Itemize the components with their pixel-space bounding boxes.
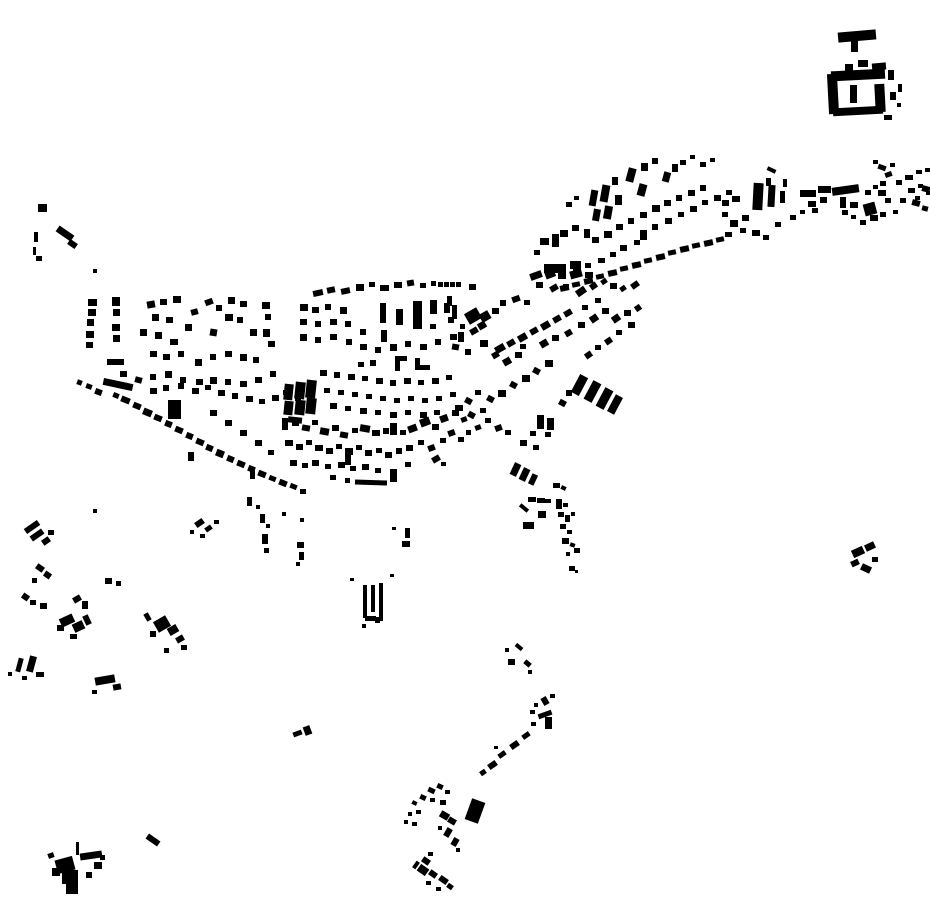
building-footprint bbox=[679, 245, 689, 253]
building-footprint bbox=[665, 218, 672, 224]
building-footprint bbox=[15, 658, 23, 673]
building-footprint bbox=[898, 84, 902, 92]
building-footprint bbox=[559, 284, 569, 292]
building-footprint bbox=[460, 416, 467, 423]
building-footprint bbox=[445, 790, 450, 794]
building-footprint bbox=[112, 392, 119, 399]
building-footprint bbox=[35, 563, 45, 573]
building-footprint bbox=[142, 408, 153, 418]
building-footprint bbox=[325, 304, 331, 310]
building-footprint bbox=[818, 186, 831, 193]
building-footprint bbox=[232, 393, 238, 399]
building-footprint bbox=[112, 297, 120, 306]
building-footprint bbox=[160, 299, 167, 305]
building-footprint bbox=[405, 341, 411, 347]
building-footprint bbox=[560, 230, 568, 237]
building-footprint bbox=[290, 460, 297, 466]
building-footprint bbox=[432, 424, 439, 430]
building-footprint bbox=[918, 184, 923, 188]
building-footprint bbox=[842, 210, 848, 215]
building-footprint bbox=[428, 852, 433, 856]
building-footprint bbox=[567, 530, 572, 534]
building-footprint bbox=[533, 445, 539, 450]
building-footprint bbox=[880, 212, 886, 217]
building-footprint bbox=[296, 562, 300, 566]
building-footprint bbox=[420, 283, 426, 288]
building-footprint bbox=[180, 377, 186, 383]
building-footprint bbox=[497, 750, 506, 759]
building-footprint bbox=[598, 258, 605, 263]
building-footprint bbox=[132, 402, 142, 411]
building-footprint bbox=[529, 326, 539, 335]
building-footprint bbox=[652, 224, 658, 230]
building-footprint bbox=[458, 437, 464, 442]
building-footprint bbox=[486, 395, 495, 404]
building-footprint bbox=[306, 440, 312, 445]
building-footprint bbox=[552, 234, 559, 247]
building-footprint bbox=[396, 309, 403, 325]
building-footprint bbox=[763, 235, 769, 240]
building-footprint bbox=[630, 280, 640, 290]
building-footprint bbox=[464, 397, 473, 406]
building-footprint bbox=[430, 300, 437, 314]
building-footprint bbox=[521, 731, 530, 740]
building-footprint bbox=[413, 301, 422, 329]
building-footprint bbox=[780, 191, 785, 203]
building-footprint bbox=[860, 563, 872, 574]
building-footprint bbox=[531, 722, 536, 726]
building-footprint bbox=[70, 634, 77, 639]
building-footprint bbox=[315, 445, 323, 451]
building-footprint bbox=[338, 462, 345, 468]
building-footprint bbox=[443, 827, 453, 838]
building-footprint bbox=[408, 812, 412, 816]
building-footprint bbox=[595, 298, 601, 303]
building-footprint bbox=[190, 530, 194, 534]
building-footprint bbox=[610, 283, 617, 289]
building-footprint bbox=[592, 208, 601, 221]
building-footprint bbox=[240, 381, 247, 387]
building-footprint bbox=[456, 848, 460, 852]
building-footprint bbox=[624, 310, 631, 316]
building-footprint bbox=[283, 401, 293, 416]
building-footprint bbox=[890, 163, 895, 167]
building-footprint bbox=[383, 428, 389, 434]
building-footprint bbox=[94, 674, 115, 685]
building-footprint bbox=[716, 236, 725, 243]
building-footprint bbox=[355, 479, 387, 485]
building-footprint bbox=[850, 559, 860, 568]
building-footprint bbox=[152, 314, 159, 321]
building-footprint bbox=[714, 195, 721, 201]
building-footprint bbox=[312, 460, 319, 466]
building-footprint bbox=[572, 225, 579, 231]
building-footprint bbox=[310, 385, 316, 390]
building-footprint bbox=[356, 445, 362, 450]
building-footprint bbox=[652, 205, 660, 212]
building-footprint bbox=[350, 578, 354, 581]
building-footprint bbox=[94, 388, 103, 396]
building-footprint bbox=[412, 822, 417, 826]
building-footprint bbox=[418, 380, 424, 385]
building-footprint bbox=[508, 659, 515, 665]
building-footprint bbox=[390, 380, 396, 386]
building-footprint bbox=[602, 308, 609, 314]
building-footprint bbox=[465, 798, 486, 823]
building-footprint bbox=[143, 612, 151, 621]
building-footprint bbox=[878, 190, 886, 196]
building-footprint bbox=[268, 450, 274, 455]
building-footprint bbox=[204, 298, 214, 306]
building-footprint bbox=[604, 231, 612, 238]
building-footprint bbox=[163, 354, 170, 360]
building-footprint bbox=[113, 683, 122, 690]
building-footprint bbox=[872, 557, 878, 562]
building-footprint bbox=[436, 887, 441, 891]
building-footprint bbox=[112, 324, 120, 331]
building-footprint bbox=[422, 398, 428, 403]
building-footprint bbox=[544, 264, 566, 273]
building-footprint bbox=[178, 351, 184, 357]
building-footprint bbox=[863, 202, 878, 217]
building-footprint bbox=[426, 881, 431, 885]
building-footprint bbox=[858, 60, 868, 67]
building-footprint bbox=[82, 614, 92, 626]
building-footprint bbox=[441, 462, 446, 466]
building-footprint bbox=[893, 210, 898, 214]
building-footprint bbox=[52, 868, 60, 876]
building-footprint bbox=[498, 390, 506, 397]
building-footprint bbox=[450, 837, 459, 847]
building-footprint bbox=[168, 400, 181, 419]
building-footprint bbox=[552, 314, 562, 323]
building-footprint bbox=[300, 518, 304, 522]
building-footprint bbox=[553, 483, 560, 488]
building-footprint bbox=[775, 222, 781, 227]
building-footprint bbox=[620, 245, 627, 251]
building-footprint bbox=[194, 518, 205, 528]
building-footprint bbox=[427, 444, 436, 452]
building-footprint bbox=[300, 489, 306, 494]
building-footprint bbox=[315, 337, 321, 343]
building-footprint bbox=[652, 158, 658, 164]
building-footprint bbox=[572, 281, 581, 288]
building-footprint bbox=[450, 392, 456, 397]
building-footprint bbox=[362, 624, 366, 628]
building-footprint bbox=[345, 478, 350, 483]
building-footprint bbox=[534, 250, 540, 255]
building-footprint bbox=[103, 378, 134, 391]
building-footprint bbox=[908, 188, 915, 193]
building-footprint bbox=[915, 196, 920, 200]
building-footprint bbox=[431, 281, 436, 286]
building-footprint bbox=[540, 320, 551, 331]
building-footprint bbox=[380, 303, 386, 323]
building-footprint bbox=[113, 335, 120, 342]
building-footprint bbox=[851, 215, 856, 219]
building-footprint bbox=[884, 171, 892, 178]
building-footprint bbox=[93, 269, 97, 273]
building-footprint bbox=[210, 410, 217, 416]
building-footprint bbox=[439, 414, 449, 423]
building-footprint bbox=[47, 852, 54, 859]
building-footprint bbox=[469, 326, 479, 335]
building-footprint bbox=[607, 269, 617, 277]
building-footprint bbox=[585, 263, 591, 268]
building-footprint bbox=[625, 167, 636, 183]
building-footprint bbox=[86, 331, 94, 338]
building-footprint bbox=[315, 321, 321, 327]
building-footprint bbox=[33, 247, 36, 255]
building-footprint bbox=[94, 862, 102, 869]
building-footprint bbox=[584, 351, 593, 360]
building-footprint bbox=[200, 534, 205, 538]
building-footprint bbox=[330, 319, 337, 325]
building-footprint bbox=[250, 329, 257, 336]
building-footprint bbox=[700, 185, 706, 191]
building-footprint bbox=[890, 92, 896, 100]
building-footprint bbox=[265, 314, 271, 320]
building-footprint bbox=[528, 473, 538, 486]
building-footprint bbox=[611, 313, 622, 323]
building-footprint bbox=[359, 424, 370, 433]
building-footprint bbox=[330, 403, 337, 409]
building-footprint bbox=[523, 522, 534, 529]
building-footprint bbox=[560, 524, 566, 529]
building-footprint bbox=[174, 426, 184, 435]
building-footprint bbox=[255, 440, 262, 446]
building-footprint bbox=[165, 371, 172, 378]
building-footprint bbox=[299, 552, 304, 560]
building-footprint bbox=[376, 448, 382, 453]
building-footprint bbox=[218, 390, 225, 396]
building-footprint bbox=[558, 512, 564, 517]
building-footprint bbox=[465, 349, 471, 355]
building-footprint bbox=[515, 643, 524, 651]
building-footprint bbox=[574, 196, 579, 200]
building-footprint bbox=[170, 339, 178, 345]
building-footprint bbox=[722, 212, 728, 217]
building-footprint bbox=[655, 253, 665, 261]
building-footprint bbox=[742, 215, 749, 221]
building-footprint bbox=[566, 390, 572, 396]
building-footprint bbox=[100, 855, 105, 860]
building-footprint bbox=[237, 317, 243, 323]
building-footprint bbox=[32, 578, 37, 583]
building-footprint bbox=[402, 541, 410, 547]
building-footprint bbox=[702, 200, 708, 205]
building-footprint bbox=[405, 462, 411, 467]
building-footprint bbox=[215, 449, 225, 458]
building-footprint bbox=[678, 212, 684, 217]
building-footprint bbox=[385, 452, 392, 458]
building-footprint bbox=[324, 388, 330, 393]
building-footprint bbox=[278, 479, 288, 488]
building-footprint bbox=[767, 185, 775, 207]
building-footprint bbox=[205, 444, 214, 452]
building-footprint bbox=[596, 273, 605, 280]
building-footprint bbox=[480, 340, 488, 347]
building-footprint bbox=[67, 239, 78, 249]
building-footprint bbox=[447, 816, 457, 825]
building-footprint bbox=[146, 300, 155, 308]
building-footprint bbox=[783, 179, 787, 187]
building-footprint bbox=[505, 648, 509, 652]
building-footprint bbox=[435, 339, 441, 345]
building-footprint bbox=[319, 427, 329, 435]
building-footprint bbox=[851, 41, 858, 52]
building-footprint bbox=[294, 382, 306, 400]
building-footprint bbox=[564, 329, 573, 338]
building-footprint bbox=[550, 694, 555, 698]
building-footprint bbox=[302, 424, 311, 431]
building-footprint bbox=[897, 103, 901, 107]
building-footprint bbox=[634, 240, 640, 245]
building-footprint bbox=[850, 202, 858, 208]
building-footprint bbox=[262, 302, 270, 309]
building-footprint bbox=[840, 197, 846, 208]
building-footprint bbox=[303, 725, 313, 736]
building-footprint bbox=[225, 351, 232, 357]
building-footprint bbox=[692, 242, 701, 249]
building-footprint bbox=[532, 367, 541, 376]
building-footprint bbox=[247, 497, 252, 506]
building-footprint bbox=[289, 483, 297, 490]
building-footprint bbox=[582, 305, 588, 310]
building-footprint bbox=[86, 872, 92, 878]
building-footprint bbox=[538, 511, 546, 518]
building-footprint bbox=[600, 278, 608, 286]
building-footprint bbox=[573, 268, 580, 273]
building-footprint bbox=[85, 383, 92, 390]
building-footprint bbox=[256, 505, 260, 509]
building-footprint bbox=[820, 197, 827, 203]
building-footprint bbox=[479, 769, 487, 777]
building-footprint bbox=[285, 440, 293, 446]
building-footprint bbox=[438, 282, 443, 287]
building-footprint bbox=[26, 655, 37, 672]
building-footprint bbox=[150, 351, 157, 357]
building-footprint bbox=[569, 566, 575, 571]
building-footprint bbox=[406, 445, 413, 451]
building-footprint bbox=[603, 205, 613, 219]
building-footprint bbox=[330, 475, 336, 480]
building-footprint bbox=[640, 230, 647, 240]
building-footprint bbox=[253, 357, 259, 363]
building-footprint bbox=[76, 379, 82, 385]
building-footprint bbox=[153, 414, 163, 423]
building-footprint bbox=[396, 448, 402, 454]
building-footprint bbox=[519, 503, 529, 512]
building-footprint bbox=[900, 198, 906, 203]
building-footprint bbox=[181, 645, 187, 650]
building-footprint bbox=[865, 190, 871, 195]
building-footprint bbox=[460, 324, 465, 329]
building-footprint bbox=[534, 703, 538, 707]
building-footprint bbox=[634, 304, 642, 312]
building-footprint bbox=[380, 396, 386, 401]
building-footprint bbox=[86, 342, 93, 348]
building-footprint bbox=[188, 452, 194, 461]
building-footprint bbox=[578, 322, 585, 328]
building-footprint bbox=[226, 455, 235, 463]
building-footprint bbox=[312, 307, 319, 313]
building-footprint bbox=[43, 571, 52, 580]
building-footprint bbox=[369, 282, 375, 287]
building-footprint bbox=[346, 339, 352, 345]
building-footprint bbox=[556, 499, 562, 509]
building-footprint bbox=[620, 265, 629, 272]
building-footprint bbox=[905, 175, 913, 180]
building-footprint bbox=[600, 184, 611, 202]
building-footprint bbox=[352, 428, 358, 433]
building-footprint bbox=[921, 185, 930, 193]
building-footprint bbox=[348, 374, 355, 380]
building-footprint bbox=[832, 184, 860, 196]
building-footprint bbox=[87, 319, 94, 326]
building-footprint bbox=[434, 410, 440, 415]
building-footprint bbox=[566, 552, 570, 556]
building-footprint bbox=[585, 272, 593, 278]
building-footprint bbox=[330, 334, 337, 340]
building-footprint bbox=[262, 534, 268, 544]
building-footprint bbox=[475, 390, 481, 395]
building-footprint bbox=[740, 228, 746, 233]
building-footprint bbox=[263, 329, 270, 337]
building-footprint bbox=[436, 396, 442, 401]
building-footprint bbox=[873, 185, 878, 189]
building-footprint bbox=[808, 201, 816, 207]
building-footprint bbox=[450, 334, 457, 340]
building-footprint bbox=[150, 374, 156, 380]
building-footprint bbox=[549, 283, 559, 292]
building-footprint bbox=[616, 224, 623, 230]
building-footprint bbox=[175, 634, 185, 643]
building-footprint bbox=[873, 160, 878, 164]
building-footprint bbox=[375, 410, 381, 415]
building-footprint bbox=[325, 464, 331, 469]
building-footprint bbox=[850, 85, 857, 103]
building-footprint bbox=[30, 600, 36, 605]
building-footprint bbox=[259, 399, 265, 404]
building-footprint bbox=[294, 400, 306, 416]
building-footprint bbox=[732, 196, 740, 202]
building-footprint bbox=[584, 380, 602, 403]
building-footprint bbox=[163, 385, 169, 391]
building-footprint bbox=[185, 324, 192, 331]
building-footprint bbox=[66, 884, 78, 894]
building-footprint bbox=[150, 388, 157, 394]
building-footprint bbox=[57, 625, 64, 631]
building-footprint bbox=[185, 432, 194, 440]
building-footprint bbox=[446, 375, 452, 380]
building-footprint bbox=[113, 309, 120, 316]
building-footprint bbox=[326, 448, 333, 454]
building-footprint bbox=[500, 300, 506, 306]
building-footprint bbox=[105, 578, 112, 584]
building-footprint bbox=[916, 170, 922, 174]
building-footprint bbox=[36, 256, 42, 261]
building-footprint bbox=[726, 190, 732, 195]
building-footprint bbox=[210, 377, 217, 384]
building-footprint bbox=[800, 210, 805, 214]
building-footprint bbox=[428, 869, 438, 879]
building-footprint bbox=[270, 371, 276, 377]
building-footprint bbox=[297, 542, 304, 548]
building-footprint bbox=[510, 462, 522, 477]
building-footprint bbox=[80, 851, 103, 861]
building-footprint bbox=[216, 305, 222, 311]
